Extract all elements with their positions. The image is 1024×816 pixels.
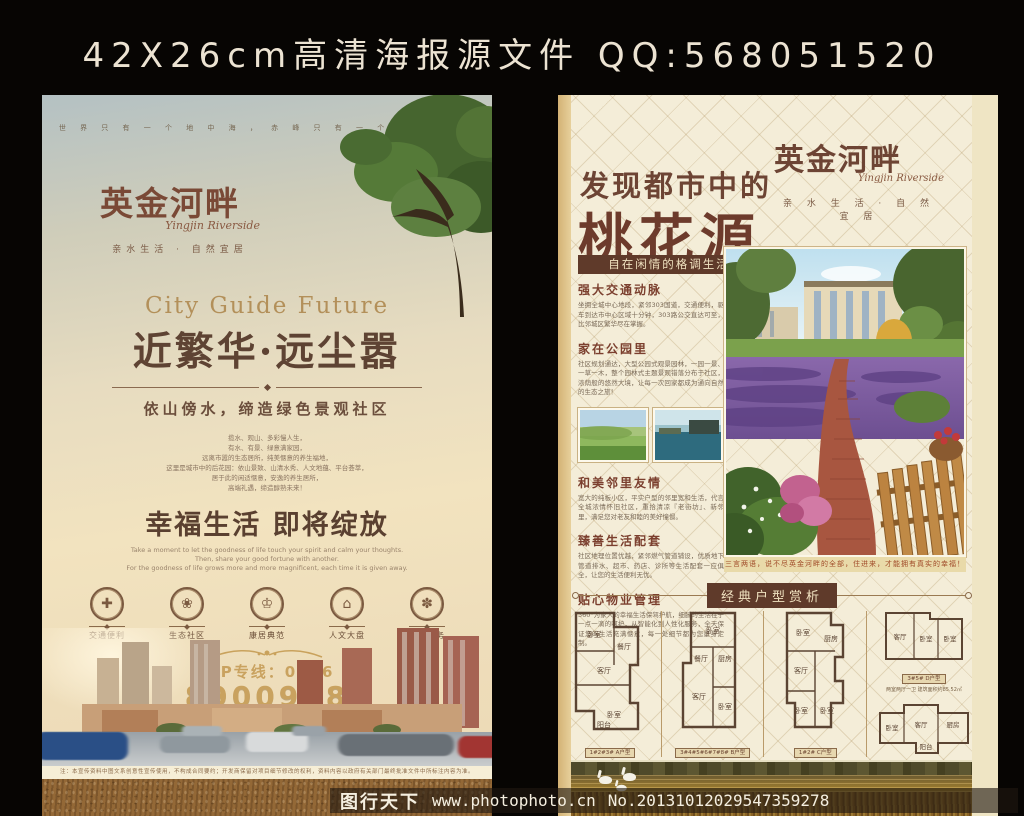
brand-logo: 英金河畔 Yingjin Riverside 亲 水 生 活 · 自 然 宜 居 [774, 135, 944, 222]
watermark-site: 图行天下 [340, 788, 420, 814]
svg-text:阳台: 阳台 [919, 742, 932, 751]
floorplan-section-title: 经典户型赏析 [707, 583, 837, 608]
svg-text:卧室: 卧室 [706, 626, 720, 635]
watermark-bar: 图行天下 www.photophoto.cn No.20131012029547… [330, 788, 1018, 813]
floorplan-d: 客厅 卧室 卧室 3#5# D户型 两室两厅一卫 建筑面积约85.52㎡ [876, 607, 972, 693]
svg-text:客厅: 客厅 [794, 666, 808, 675]
right-poster: 英金河畔 Yingjin Riverside 亲 水 生 活 · 自 然 宜 居… [558, 95, 998, 816]
svg-text:客厅: 客厅 [893, 632, 907, 641]
leaf-icon: ❀ [170, 587, 204, 621]
svg-text:客厅: 客厅 [597, 666, 611, 675]
cityscape-image [42, 628, 492, 766]
ornament-divider [169, 626, 205, 627]
photo-caption: 三言两语，说不尽英金河畔的全部，住进来，才能拥有真实的幸福！ [724, 557, 966, 572]
medical-cross-icon: ✚ [90, 587, 124, 621]
svg-text:客厅: 客厅 [692, 692, 706, 701]
svg-text:餐厅: 餐厅 [694, 654, 708, 663]
svg-text:卧室: 卧室 [718, 702, 732, 711]
sub-headline: 依山傍水，缔造绿色景观社区 [42, 398, 492, 419]
diamond-divider [112, 385, 422, 390]
brand-tagline: 亲 水 生 活 · 自 然 宜 居 [774, 196, 944, 222]
section-amenities: 臻善生活配套 社区地理位置优越，紧邻燃气管道铺设，优质地下管道排水、超市、药店、… [578, 532, 724, 581]
brand-logo: 英金河畔 Yingjin Riverside 亲水生活 · 自然宜居 [100, 177, 260, 255]
ornament-divider [329, 626, 365, 627]
plan-divider [866, 611, 867, 757]
headline-english: City Guide Future [42, 293, 492, 319]
happiness-title: 幸福生活 即将绽放 [42, 503, 492, 542]
pool-pavilion-photo [653, 408, 723, 462]
left-poster: 世 界 只 有 一 个 地 中 海 ， 赤 峰 只 有 一 个 英 金 河 畔 … [42, 95, 492, 816]
golf-course-photo [578, 408, 648, 462]
ornament-divider [249, 626, 285, 627]
swan-icon [599, 776, 612, 784]
svg-text:卧室: 卧室 [943, 634, 957, 643]
svg-text:餐厅: 餐厅 [617, 642, 631, 651]
svg-text:卧室: 卧室 [794, 706, 808, 715]
tree-image [296, 95, 492, 322]
svg-text:卧室: 卧室 [919, 634, 933, 643]
brand-name: 英金河畔 [100, 177, 260, 225]
swan-icon [623, 773, 636, 781]
svg-text:客厅: 客厅 [914, 720, 928, 729]
svg-text:卧室: 卧室 [796, 628, 810, 637]
service-icon: ✽ [410, 587, 444, 621]
design-preview: 42X26cm高清海报源文件 QQ:568051520 世 界 只 有 一 个 … [0, 0, 1024, 816]
section-transport: 强大交通动脉 坐拥全城中心地段，紧邻303国道，交通便利，驱车到达市中心区域十分… [578, 281, 724, 330]
house-icon: ⌂ [330, 587, 364, 621]
ornament-divider [409, 626, 445, 627]
svg-text:厨房: 厨房 [718, 654, 732, 663]
svg-text:阳台: 阳台 [597, 720, 611, 729]
page-title: 42X26cm高清海报源文件 QQ:568051520 [0, 28, 1024, 77]
section-park: 家在公园里 社区规划通达，大型公园式观景园林，一园一景、一草一木，整个园林式主题… [578, 340, 724, 398]
headline-main: 近繁华·远尘嚣 [42, 321, 492, 377]
brand-tagline: 亲水生活 · 自然宜居 [100, 242, 260, 255]
svg-text:厨房: 厨房 [946, 720, 959, 729]
crown-icon: ♔ [250, 587, 284, 621]
svg-text:卧室: 卧室 [885, 723, 899, 732]
thumbnail-photos [578, 408, 724, 462]
watermark-number: No.20131012029547359278 [608, 791, 830, 810]
watermark-url: www.photophoto.cn [432, 791, 596, 810]
cream-border-strip [972, 95, 998, 816]
svg-text:厨房: 厨房 [824, 634, 838, 643]
happiness-english: Take a moment to let the goodness of lif… [42, 546, 492, 573]
section-neighbors: 和美邻里友情 宽大的纯板小区，平实户型的邻里宽和生活，代言全城浓情怀旧社区，重拾… [578, 474, 724, 523]
garden-photo [724, 247, 966, 557]
disclaimer-line: 注：本宣传资料中图文系创意性宣传使用，不构成合同要约；开发商保留对项目细节修改的… [42, 766, 492, 779]
svg-text:卧室: 卧室 [820, 706, 834, 715]
svg-text:卧室: 卧室 [587, 630, 601, 639]
ornament-divider [89, 626, 125, 627]
plan-divider [763, 611, 764, 757]
floorplan-divider: 经典户型赏析 [572, 583, 972, 608]
poem-text: 揽水、观山、多彩慢人生， 有水、有景、绿意满家园， 远离市嚣的生态居所，纯美惬意… [42, 433, 492, 493]
plan-divider [661, 611, 662, 757]
svg-text:卧室: 卧室 [607, 710, 621, 719]
